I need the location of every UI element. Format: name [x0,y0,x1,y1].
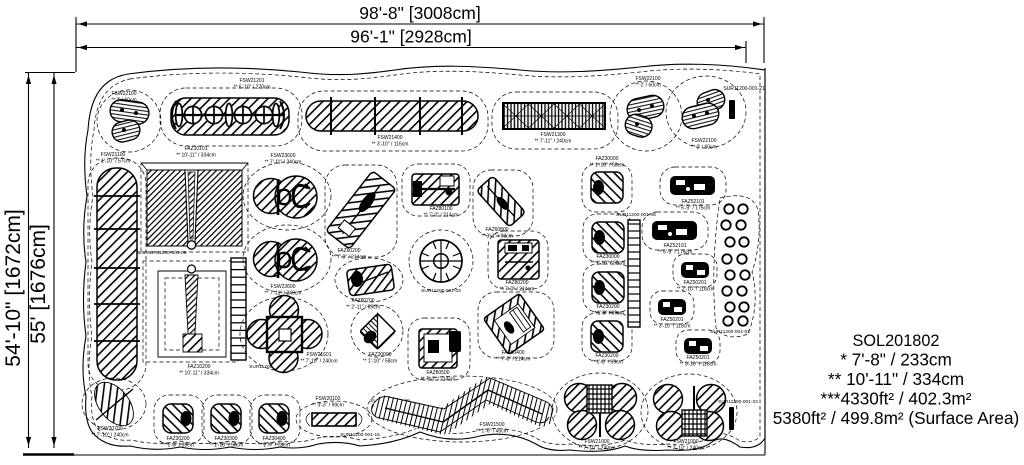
svg-text:FAZ30300: FAZ30300 [214,436,237,442]
svg-text:** 7'-10" / 240cm: ** 7'-10" / 240cm [667,445,704,451]
svg-text:FAZ80700: FAZ80700 [351,298,374,304]
svg-text:** 7'-10" / 240cm: ** 7'-10" / 240cm [578,445,615,451]
svg-text:FAZ50201: FAZ50201 [683,280,706,286]
svg-text:** 1'-6" / 45cm: ** 1'-6" / 45cm [476,428,508,434]
svg-text:** 7'-0" / 214cm: ** 7'-0" / 214cm [496,356,530,362]
svg-text:54'-10" [1672cm]: 54'-10" [1672cm] [2,209,25,366]
svg-text:5380ft² / 499.8m² (Surface Are: 5380ft² / 499.8m² (Surface Area) [773,408,1019,428]
svg-text:SUR11200-001-21: SUR11200-001-21 [723,86,765,92]
svg-text:** 1'-3" / 39cm: ** 1'-3" / 39cm [592,310,624,316]
svg-text:** 7'-0" / 214cm: ** 7'-0" / 214cm [424,212,458,218]
svg-text:FAZ80200: FAZ80200 [505,280,528,286]
svg-text:** 2'-7" / 78cm: ** 2'-7" / 78cm [258,442,290,448]
svg-text:** 2'-10" / 118cm: ** 2'-10" / 118cm [677,286,714,292]
svg-text:FSW21100: FSW21100 [101,152,126,158]
svg-text:FAZ60800: FAZ60800 [485,227,508,233]
svg-text:FSW20102: FSW20102 [315,396,340,402]
svg-text:SUR11200-001-15: SUR11200-001-15 [340,432,380,438]
svg-text:FAZ52101: FAZ52101 [681,199,704,205]
svg-text:** 10'-11" / 334cm: ** 10'-11" / 334cm [179,370,219,376]
svg-text:** 7'-0" / 214cm: ** 7'-0" / 214cm [332,254,366,260]
svg-text:FSW22100: FSW22100 [111,91,136,97]
svg-text:FAZ80500: FAZ80500 [426,370,449,376]
svg-text:FSW23600: FSW23600 [270,284,295,290]
svg-text:** 3'-1" / 93cm: ** 3'-1" / 93cm [481,233,513,239]
svg-text:** 2' / 60cm: ** 2' / 60cm [111,97,136,103]
svg-text:FSW21400: FSW21400 [377,135,402,141]
svg-text:FSW21500: FSW21500 [479,422,504,428]
svg-text:SOL201802: SOL201802 [853,332,940,350]
svg-text:FSW22100: FSW22100 [635,76,660,82]
svg-text:** 7'-10" / 240cm: ** 7'-10" / 240cm [300,358,337,364]
svg-text:** 1'-10" / 58cm: ** 1'-10" / 58cm [209,442,243,448]
svg-text:* 7'-8" / 233cm: * 7'-8" / 233cm [840,350,952,370]
svg-text:** 7'-10" / 240cm: ** 7'-10" / 240cm [91,432,128,438]
svg-text:FAZ50201: FAZ50201 [686,355,709,361]
svg-text:** 6'-10" / 270cm: ** 6'-10" / 270cm [233,84,270,90]
svg-text:FSW20700: FSW20700 [97,426,122,432]
svg-text:96'-1" [2928cm]: 96'-1" [2928cm] [350,27,471,47]
svg-text:FSW23600: FSW23600 [270,153,295,159]
svg-text:FSW21000: FSW21000 [584,439,609,445]
svg-text:FAZ52101: FAZ52101 [663,243,686,249]
svg-text:FSW21601: FSW21601 [306,352,331,358]
svg-text:FSW22100: FSW22100 [691,138,716,144]
svg-text:** 1'-3" / 39cm: ** 1'-3" / 39cm [591,359,623,365]
svg-text:SUR11200-001-08: SUR11200-001-08 [616,212,656,218]
svg-text:** 7'-11" / 240cm: ** 7'-11" / 240cm [535,138,572,144]
svg-text:** 5'-9" / 175cm: ** 5'-9" / 175cm [658,249,692,255]
svg-text:** 7'-0" / 214cm: ** 7'-0" / 214cm [500,286,534,292]
svg-text:** 1'-3" / 39cm: ** 1'-3" / 39cm [162,442,194,448]
svg-text:FAZ10101: FAZ10101 [184,146,207,152]
svg-text:FAZ30000: FAZ30000 [596,254,619,260]
svg-text:FAZ10200: FAZ10200 [187,364,210,370]
svg-text:** 3'-10" / 118cm: ** 3'-10" / 118cm [680,361,717,367]
svg-text:** 10'-11" / 334cm: ** 10'-11" / 334cm [828,369,964,389]
svg-text:50x SUR11200-001-09: 50x SUR11200-001-09 [138,250,187,256]
svg-text:FAZ60400: FAZ60400 [501,350,524,356]
svg-text:FSW21201: FSW21201 [239,78,264,84]
svg-text:SUR11200-001-01: SUR11200-001-01 [710,329,750,335]
svg-text:** 1'-10" / 58cm: ** 1'-10" / 58cm [591,260,625,266]
svg-text:FAZ60200: FAZ60200 [337,248,360,254]
svg-text:FAZ50201: FAZ50201 [660,317,683,323]
svg-text:** 7'-11" / 240cm: ** 7'-11" / 240cm [265,159,302,165]
svg-text:FAZ30200: FAZ30200 [166,436,189,442]
svg-text:** 1'-10" / 57cm: ** 1'-10" / 57cm [96,158,130,164]
svg-text:SUR11200-001-23: SUR11200-001-23 [718,399,758,405]
svg-text:** 2' / 60cm: ** 2' / 60cm [691,144,716,150]
svg-text:** 2' / 60cm: ** 2' / 60cm [635,82,660,88]
svg-text:FAZ30200: FAZ30200 [596,304,619,310]
svg-text:FAZ80100: FAZ80100 [429,206,452,212]
svg-text:** 7'-0" / 214cm: ** 7'-0" / 214cm [421,376,455,382]
svg-text:FAZ30000: FAZ30000 [595,156,618,162]
svg-text:** 3'-3" / 99cm: ** 3'-3" / 99cm [312,402,344,408]
svg-text:** 5'-9" / 175cm: ** 5'-9" / 175cm [676,205,710,211]
svg-text:FSW21300: FSW21300 [540,132,565,138]
svg-text:FSW21000: FSW21000 [673,439,698,445]
svg-text:FAZ30200: FAZ30200 [595,353,618,359]
svg-text:FAZ30000: FAZ30000 [368,352,391,358]
svg-text:** 3'-10" / 118cm: ** 3'-10" / 118cm [654,323,691,329]
svg-text:SUR11200-001-03: SUR11200-001-03 [421,288,461,294]
svg-text:***4330ft² / 402.3m²: ***4330ft² / 402.3m² [821,389,972,409]
svg-text:** 1'-10" / 58cm: ** 1'-10" / 58cm [590,162,624,168]
svg-text:98'-8" [3008cm]: 98'-8" [3008cm] [359,3,480,23]
svg-text:** 3'-10" / 116cm: ** 3'-10" / 116cm [372,141,409,147]
svg-text:** 10'-11" / 334cm: ** 10'-11" / 334cm [176,152,216,158]
svg-text:FAZ30400: FAZ30400 [262,436,285,442]
svg-text:** 1'-10" / 58cm: ** 1'-10" / 58cm [363,358,397,364]
svg-text:55' [1676cm]: 55' [1676cm] [27,224,50,344]
